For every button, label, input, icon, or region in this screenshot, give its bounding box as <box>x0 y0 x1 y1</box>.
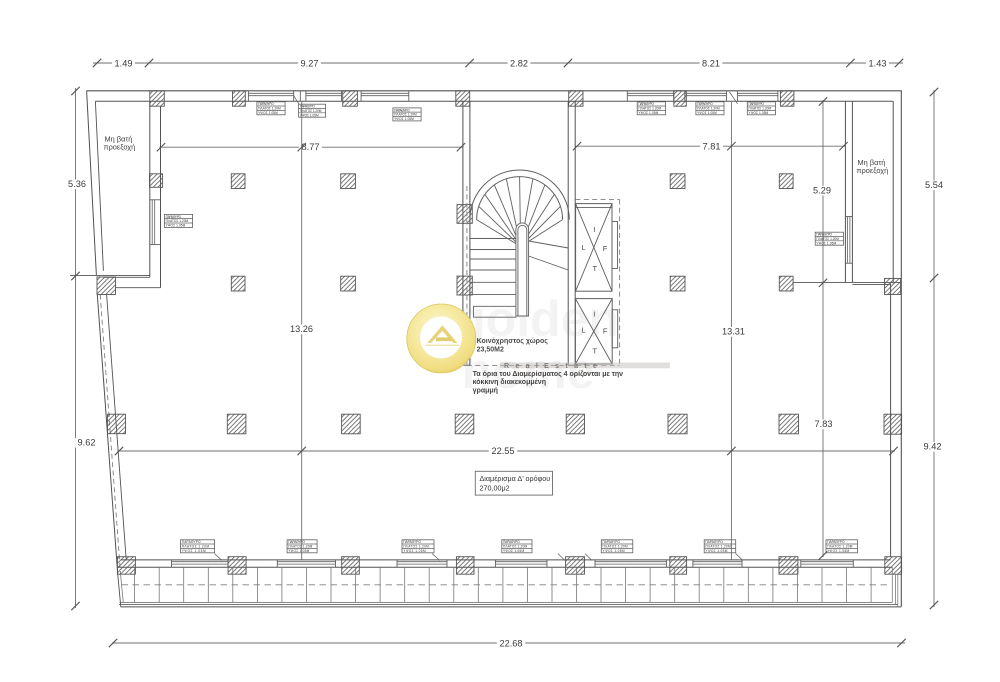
svg-text:22.68: 22.68 <box>500 638 523 648</box>
svg-text:270,00μ2: 270,00μ2 <box>480 483 510 492</box>
svg-text:23,50Μ2: 23,50Μ2 <box>477 346 504 353</box>
svg-text:ΠΛΑΤΟΣ 1.20Μ: ΠΛΑΤΟΣ 1.20Μ <box>300 109 322 113</box>
svg-text:ΠΑΡΑΘΥΡΟ: ΠΑΡΑΘΥΡΟ <box>503 540 520 544</box>
svg-text:ΥΨΟΣ 1.05Μ: ΥΨΟΣ 1.05Μ <box>300 113 319 117</box>
svg-text:ΥΨΟΣ 1.05Μ: ΥΨΟΣ 1.05Μ <box>816 241 836 245</box>
svg-text:ΠΛΑΤΟΣ 1.20Μ: ΠΛΑΤΟΣ 1.20Μ <box>827 545 853 549</box>
svg-text:Διαμέρισμα Δ’ ορόφου: Διαμέρισμα Δ’ ορόφου <box>480 474 551 483</box>
svg-text:ΠΑΡΑΘΥΡΟ: ΠΑΡΑΘΥΡΟ <box>288 540 305 544</box>
svg-text:Κοινόχρηστος χώρος: Κοινόχρηστος χώρος <box>477 338 549 345</box>
svg-text:T: T <box>593 347 598 356</box>
svg-text:13.26: 13.26 <box>290 324 313 334</box>
svg-text:2.82: 2.82 <box>510 58 528 68</box>
svg-text:5.29: 5.29 <box>813 185 831 195</box>
svg-text:ΠΑΡΑΘΥΡΟ: ΠΑΡΑΘΥΡΟ <box>638 102 654 106</box>
svg-text:ΠΑΡΑΘΥΡΟ: ΠΑΡΑΘΥΡΟ <box>258 102 274 106</box>
svg-text:ΠΑΡΑΘΥΡΟ: ΠΑΡΑΘΥΡΟ <box>816 233 832 237</box>
svg-text:ΠΑΡΑΘΥΡΟ: ΠΑΡΑΘΥΡΟ <box>827 540 845 544</box>
svg-text:9.27: 9.27 <box>301 58 319 68</box>
svg-text:γραμμή: γραμμή <box>473 388 498 395</box>
svg-text:ΥΨΟΣ 1.05Μ: ΥΨΟΣ 1.05Μ <box>503 549 524 553</box>
svg-text:F: F <box>603 244 608 253</box>
svg-text:ΥΨΟΣ 1.05Μ: ΥΨΟΣ 1.05Μ <box>403 549 426 553</box>
svg-text:ΥΨΟΣ 1.05Μ: ΥΨΟΣ 1.05Μ <box>182 549 206 553</box>
svg-text:ΠΛΑΤΟΣ 1.20Μ: ΠΛΑΤΟΣ 1.20Μ <box>638 107 661 111</box>
svg-text:ΠΑΡΑΘΥΡΟ: ΠΑΡΑΘΥΡΟ <box>603 540 621 544</box>
svg-text:22.55: 22.55 <box>492 446 515 456</box>
svg-text:L: L <box>581 326 585 335</box>
svg-text:9.42: 9.42 <box>924 442 942 452</box>
svg-text:ΠΑΡΑΘΥΡΟ: ΠΑΡΑΘΥΡΟ <box>394 108 410 112</box>
svg-text:8.77: 8.77 <box>302 142 320 152</box>
svg-text:ΠΑΡΑΘΥΡΟ: ΠΑΡΑΘΥΡΟ <box>182 540 201 544</box>
svg-text:προεξοχή: προεξοχή <box>857 166 889 175</box>
svg-text:F: F <box>603 327 608 336</box>
svg-text:ΥΨΟΣ 1.05Μ: ΥΨΟΣ 1.05Μ <box>394 117 414 121</box>
svg-text:ΠΛΑΤΟΣ 1.20Μ: ΠΛΑΤΟΣ 1.20Μ <box>697 107 720 111</box>
svg-text:ΥΨΟΣ 1.05Μ: ΥΨΟΣ 1.05Μ <box>749 111 769 115</box>
svg-text:9.62: 9.62 <box>78 438 96 448</box>
svg-text:κόκκινη διακεκομμένη: κόκκινη διακεκομμένη <box>473 379 546 386</box>
svg-text:ΠΛΑΤΟΣ 1.20Μ: ΠΛΑΤΟΣ 1.20Μ <box>749 107 772 111</box>
svg-text:1.49: 1.49 <box>115 58 133 68</box>
svg-text:ΥΨΟΣ 1.05Μ: ΥΨΟΣ 1.05Μ <box>258 111 278 115</box>
svg-text:ΠΛΑΤΟΣ 1.20Μ: ΠΛΑΤΟΣ 1.20Μ <box>258 107 281 111</box>
svg-text:ΥΨΟΣ 1.05Μ: ΥΨΟΣ 1.05Μ <box>166 224 186 228</box>
svg-text:ΥΨΟΣ 1.05Μ: ΥΨΟΣ 1.05Μ <box>288 549 309 553</box>
svg-text:Τα όρια του Διαμερίσματος 4 ορ: Τα όρια του Διαμερίσματος 4 ορίζονται με… <box>473 371 624 378</box>
svg-text:ΥΨΟΣ 1.05Μ: ΥΨΟΣ 1.05Μ <box>603 549 625 553</box>
svg-text:ΠΑΡΑΘΥΡΟ: ΠΑΡΑΘΥΡΟ <box>403 540 421 544</box>
svg-text:ΠΛΑΤΟΣ 1.20Μ: ΠΛΑΤΟΣ 1.20Μ <box>182 545 210 549</box>
svg-text:7.83: 7.83 <box>815 419 833 429</box>
svg-text:R e a l E s t a t e: R e a l E s t a t e <box>504 363 599 370</box>
svg-text:ΥΨΟΣ 1.05Μ: ΥΨΟΣ 1.05Μ <box>705 549 727 553</box>
svg-text:ΠΑΡΑΘΥΡΟ: ΠΑΡΑΘΥΡΟ <box>749 102 765 106</box>
svg-text:ΠΛΑΤΟΣ 1.20Μ: ΠΛΑΤΟΣ 1.20Μ <box>288 545 312 549</box>
svg-text:5.36: 5.36 <box>68 179 86 189</box>
svg-text:I: I <box>593 225 595 234</box>
svg-text:8.21: 8.21 <box>702 58 720 68</box>
svg-text:ΥΨΟΣ 1.05Μ: ΥΨΟΣ 1.05Μ <box>697 111 717 115</box>
svg-text:1.43: 1.43 <box>869 58 887 68</box>
svg-text:ΠΑΡΑΘΥΡΟ: ΠΑΡΑΘΥΡΟ <box>705 540 723 544</box>
svg-text:T: T <box>593 264 598 273</box>
svg-text:ΥΨΟΣ 1.05Μ: ΥΨΟΣ 1.05Μ <box>827 549 849 553</box>
svg-text:ΠΑΡΑΘΥΡΟ: ΠΑΡΑΘΥΡΟ <box>166 215 182 219</box>
svg-text:ΠΛΑΤΟΣ 1.20Μ: ΠΛΑΤΟΣ 1.20Μ <box>394 113 417 117</box>
svg-text:ΠΑΡΑΘΥΡΟ: ΠΑΡΑΘΥΡΟ <box>300 105 315 109</box>
svg-text:ΠΛΑΤΟΣ 1.20Μ: ΠΛΑΤΟΣ 1.20Μ <box>816 237 839 241</box>
svg-text:ΠΛΑΤΟΣ 1.20Μ: ΠΛΑΤΟΣ 1.20Μ <box>503 545 528 549</box>
svg-text:ΥΨΟΣ 1.05Μ: ΥΨΟΣ 1.05Μ <box>638 111 658 115</box>
svg-text:ΠΛΑΤΟΣ 1.20Μ: ΠΛΑΤΟΣ 1.20Μ <box>403 545 429 549</box>
svg-text:13.31: 13.31 <box>722 327 745 337</box>
svg-text:L: L <box>582 243 586 252</box>
svg-text:ΠΑΡΑΘΥΡΟ: ΠΑΡΑΘΥΡΟ <box>697 102 713 106</box>
svg-text:ΠΛΑΤΟΣ 1.20Μ: ΠΛΑΤΟΣ 1.20Μ <box>166 219 189 223</box>
svg-text:ΠΛΑΤΟΣ 1.20Μ: ΠΛΑΤΟΣ 1.20Μ <box>705 545 731 549</box>
svg-text:5.54: 5.54 <box>925 180 943 190</box>
svg-text:7.81: 7.81 <box>703 141 721 151</box>
svg-text:ΠΛΑΤΟΣ 1.20Μ: ΠΛΑΤΟΣ 1.20Μ <box>603 545 629 549</box>
svg-text:προεξοχή: προεξοχή <box>104 143 136 152</box>
svg-text:I: I <box>593 310 595 319</box>
